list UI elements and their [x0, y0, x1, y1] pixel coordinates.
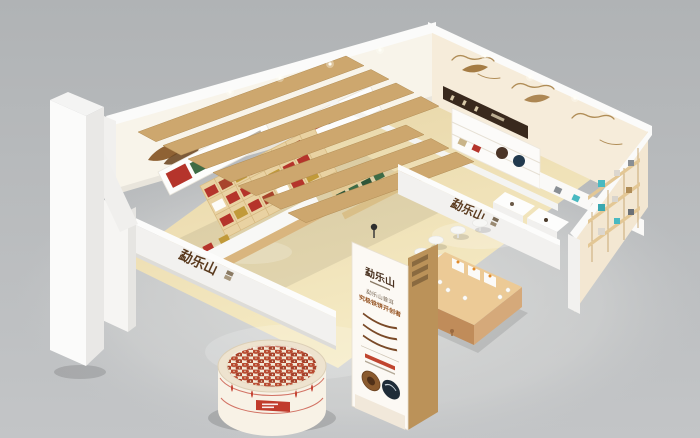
tea-cake-photo-blue [513, 155, 525, 167]
render-canvas: 勐乐山 [0, 0, 700, 438]
kiosk-label [256, 400, 290, 412]
shelf-product-teal [614, 218, 620, 224]
wall-end-cap [568, 234, 580, 314]
booth-render-scene: 勐乐山 [0, 0, 700, 438]
entry-pillar [50, 92, 106, 379]
tea-cake-photo-dark [496, 147, 508, 159]
shelf-product-teal [598, 180, 605, 187]
tea-cake-kiosk [208, 340, 336, 436]
spotlight-lamp [371, 224, 377, 230]
